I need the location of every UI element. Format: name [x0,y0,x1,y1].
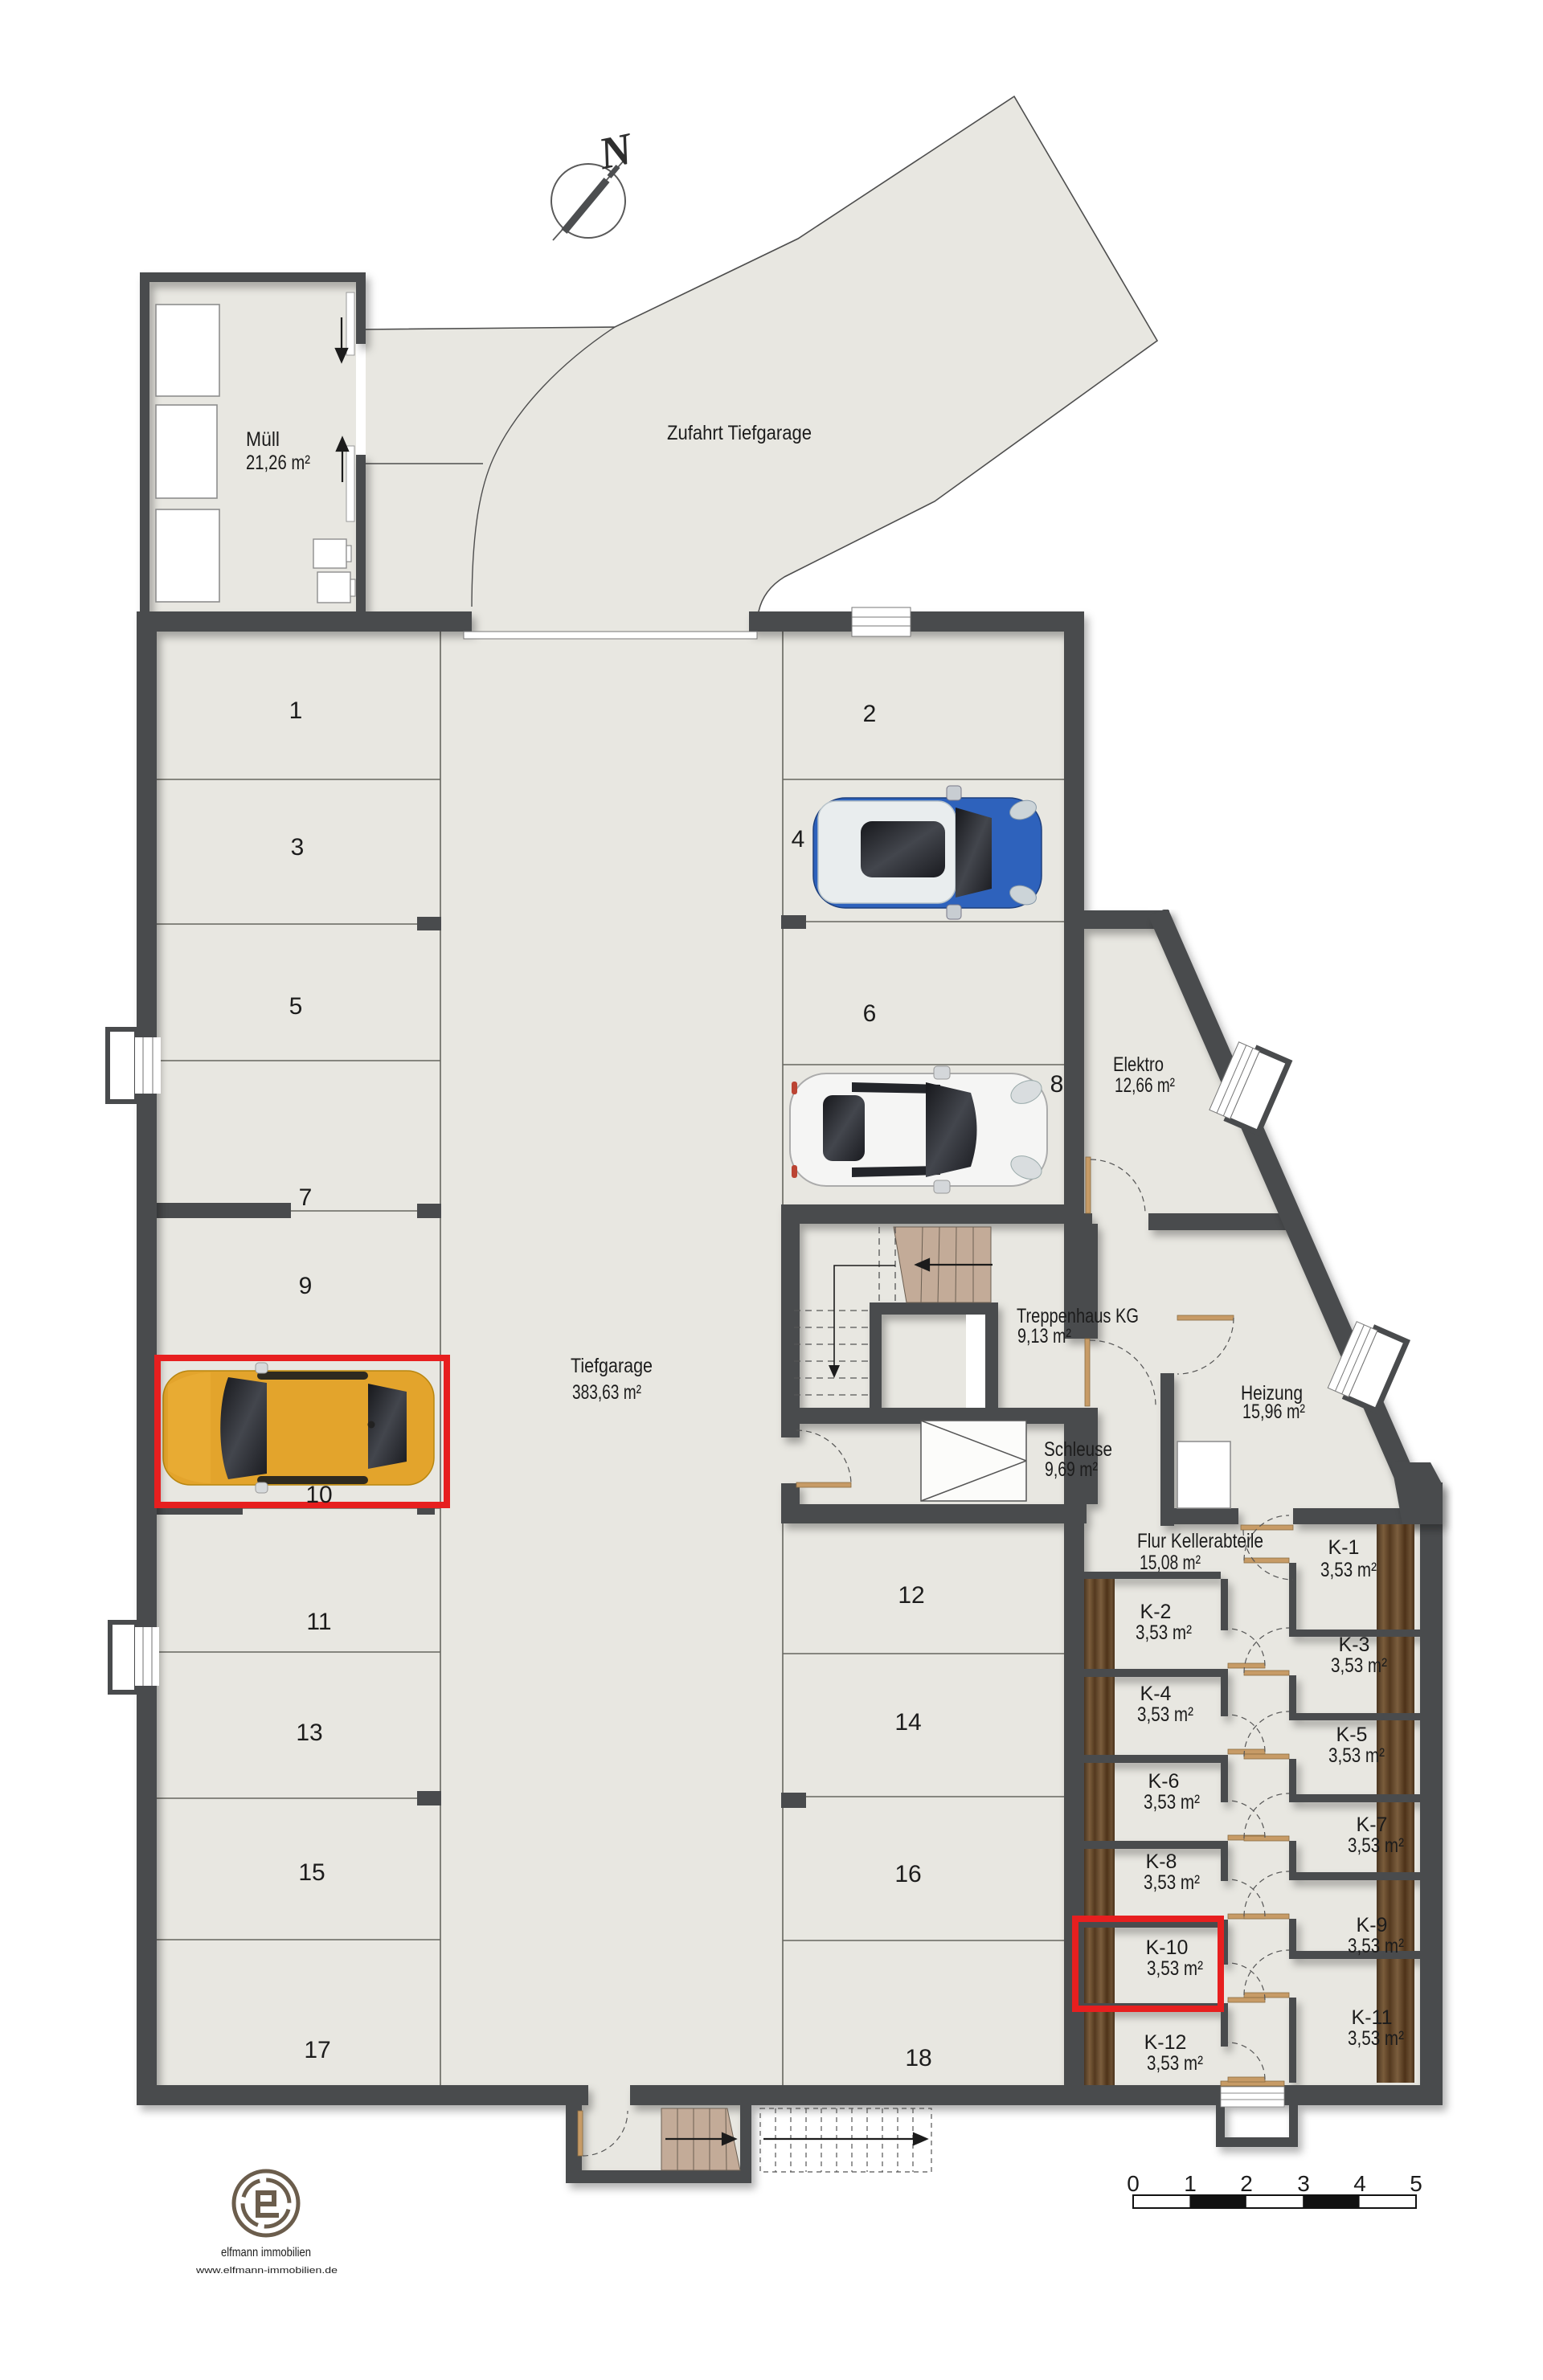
svg-text:17: 17 [304,2037,330,2063]
svg-text:3,53 m²: 3,53 m² [1147,1957,1203,1980]
svg-text:3,53 m²: 3,53 m² [1320,1559,1377,1581]
svg-text:3,53 m²: 3,53 m² [1328,1744,1385,1767]
svg-text:Müll: Müll [246,428,280,451]
svg-text:K-7: K-7 [1357,1814,1388,1836]
svg-text:1: 1 [1184,2171,1197,2196]
svg-text:3,53 m²: 3,53 m² [1147,2052,1203,2075]
svg-text:Tiefgarage: Tiefgarage [571,1355,653,1377]
svg-text:K-6: K-6 [1148,1770,1180,1793]
svg-text:K-3: K-3 [1339,1634,1370,1656]
svg-text:3,53 m²: 3,53 m² [1136,1621,1192,1644]
svg-text:Elektro: Elektro [1113,1053,1164,1076]
svg-text:K-8: K-8 [1146,1850,1177,1873]
svg-text:10: 10 [305,1482,332,1508]
svg-text:1: 1 [289,697,303,724]
svg-text:15,08 m²: 15,08 m² [1140,1552,1201,1574]
svg-text:Zufahrt Tiefgarage: Zufahrt Tiefgarage [667,422,812,444]
svg-text:3: 3 [291,834,305,861]
svg-text:K-10: K-10 [1146,1936,1189,1959]
svg-text:8: 8 [1050,1071,1064,1098]
svg-text:3,53 m²: 3,53 m² [1348,2027,1404,2050]
svg-text:elfmann immobilien: elfmann immobilien [221,2246,311,2259]
svg-text:9: 9 [299,1273,313,1299]
svg-text:3,53 m²: 3,53 m² [1348,1935,1404,1957]
svg-text:12,66 m²: 12,66 m² [1115,1074,1175,1097]
svg-text:K-9: K-9 [1357,1914,1388,1936]
svg-text:4: 4 [792,826,805,853]
svg-text:2: 2 [863,701,877,727]
svg-text:5: 5 [289,993,303,1020]
svg-text:11: 11 [306,1609,331,1635]
svg-text:2: 2 [1240,2171,1253,2196]
svg-text:16: 16 [894,1861,921,1887]
svg-text:21,26 m²: 21,26 m² [246,452,310,474]
svg-text:3,53 m²: 3,53 m² [1144,1871,1200,1894]
svg-text:9,13 m²: 9,13 m² [1017,1325,1071,1347]
svg-text:4: 4 [1353,2171,1366,2196]
svg-text:383,63 m²: 383,63 m² [572,1381,641,1404]
svg-text:9,69 m²: 9,69 m² [1045,1458,1098,1481]
svg-text:13: 13 [296,1720,322,1746]
svg-text:12: 12 [898,1582,924,1609]
svg-text:Flur Kellerabteile: Flur Kellerabteile [1137,1530,1263,1552]
svg-text:18: 18 [905,2045,931,2071]
svg-text:3,53 m²: 3,53 m² [1348,1834,1404,1857]
svg-text:5: 5 [1410,2171,1422,2196]
svg-text:3,53 m²: 3,53 m² [1144,1791,1200,1814]
svg-text:3,53 m²: 3,53 m² [1137,1703,1193,1726]
svg-text:6: 6 [863,1000,877,1027]
svg-text:0: 0 [1127,2171,1140,2196]
svg-text:14: 14 [894,1709,921,1736]
svg-text:Schleuse: Schleuse [1044,1438,1112,1461]
svg-text:3,53 m²: 3,53 m² [1331,1654,1387,1677]
svg-text:15,96 m²: 15,96 m² [1242,1401,1305,1423]
svg-text:K-1: K-1 [1328,1536,1360,1559]
svg-text:www.elfmann-immobilien.de: www.elfmann-immobilien.de [195,2266,338,2276]
svg-text:15: 15 [298,1859,325,1886]
svg-text:Treppenhaus KG: Treppenhaus KG [1017,1305,1139,1327]
svg-text:7: 7 [299,1184,313,1211]
svg-text:3: 3 [1297,2171,1310,2196]
svg-text:K-4: K-4 [1140,1683,1172,1705]
svg-text:K-5: K-5 [1336,1724,1368,1746]
svg-text:K-11: K-11 [1352,2006,1393,2029]
svg-text:K-2: K-2 [1140,1601,1172,1623]
svg-text:K-12: K-12 [1144,2031,1187,2054]
